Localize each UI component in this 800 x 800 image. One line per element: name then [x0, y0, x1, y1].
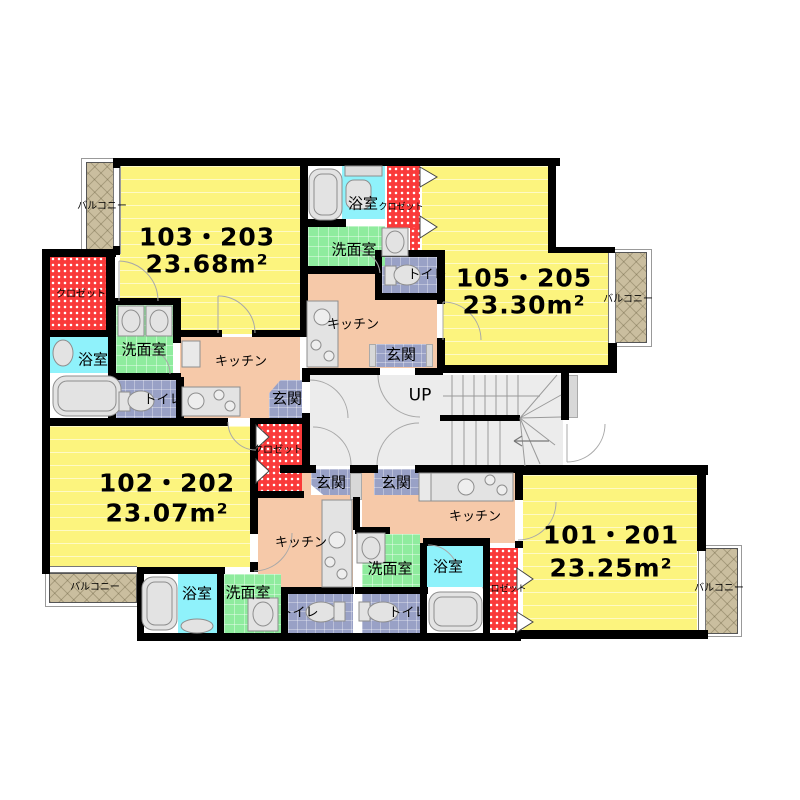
label-toilet-103: トイレ: [143, 394, 182, 407]
room-105-205: [422, 166, 548, 250]
sill-105-left: [369, 344, 376, 367]
bathtub-105: [309, 169, 342, 220]
wall: [256, 418, 302, 424]
label-bath-105: 浴室: [348, 197, 378, 212]
bathroom-102: [178, 574, 217, 633]
label-toilet-101: トイレ: [388, 607, 427, 620]
label-kitchen-103: キッチン: [215, 356, 267, 369]
wall: [302, 413, 310, 473]
wall: [608, 343, 617, 371]
wall: [42, 249, 116, 257]
wall: [515, 630, 708, 639]
wall: [423, 538, 490, 546]
wall: [308, 368, 380, 375]
wall: [108, 373, 181, 380]
wall: [515, 465, 708, 475]
unit-label-103: 103・203: [139, 225, 275, 250]
unit-label-101: 101・201: [543, 523, 679, 548]
wall: [697, 467, 706, 551]
wall: [137, 571, 144, 635]
wall: [300, 166, 308, 337]
sill-105-right: [426, 344, 433, 367]
wall: [42, 418, 228, 426]
label-entrance-105: 玄関: [386, 348, 416, 363]
wall: [355, 587, 428, 594]
wall: [108, 298, 181, 305]
unit-area-103: 23.68m²: [145, 252, 268, 277]
label-toilet-102: トイレ: [279, 607, 318, 620]
wall: [217, 571, 224, 635]
label-entrance-102: 玄関: [316, 476, 346, 491]
label-closet-101: クロゼット: [481, 586, 526, 595]
unit-label-102: 102・202: [99, 471, 235, 496]
label-kitchen-105: キッチン: [327, 319, 379, 332]
unit-area-105: 23.30m²: [462, 293, 585, 318]
label-kitchen-101: キッチン: [449, 511, 501, 524]
wall: [250, 562, 258, 572]
label-bath-103: 浴室: [78, 353, 108, 368]
wall: [548, 158, 556, 253]
unit-label-105: 105・205: [456, 266, 592, 291]
wall: [300, 219, 346, 227]
label-stairs-up: UP: [409, 388, 432, 405]
wall: [548, 247, 615, 253]
closet-102: [253, 422, 302, 491]
wall: [350, 465, 378, 473]
label-washroom-103: 洗面室: [121, 343, 166, 358]
label-washroom-105: 洗面室: [331, 243, 376, 258]
floor-plan: 103・203 23.68m² 105・205 23.30m² 102・202 …: [0, 0, 800, 800]
label-washroom-102: 洗面室: [225, 586, 270, 601]
label-kitchen-102: キッチン: [275, 537, 327, 550]
wall: [561, 373, 569, 420]
wall: [281, 587, 354, 594]
wall: [308, 266, 380, 274]
bathtub-101: [429, 592, 482, 631]
washroom-103: [116, 305, 173, 373]
wall: [280, 465, 316, 473]
wall: [252, 330, 308, 337]
wall: [137, 567, 225, 574]
wall: [420, 543, 427, 635]
wall: [440, 365, 617, 373]
bathtub-102: [142, 577, 177, 630]
label-closet-105: クロゼット: [378, 204, 423, 213]
wall: [375, 293, 445, 300]
wall: [137, 633, 521, 641]
wall: [515, 541, 523, 548]
label-toilet-105: トイレ: [407, 269, 446, 282]
wall: [250, 418, 258, 534]
label-balcony-103: バルコニー: [77, 202, 127, 212]
closet-105: [387, 166, 420, 228]
label-entrance-103: 玄関: [272, 392, 302, 407]
shoe-cabinet-101: [419, 473, 432, 500]
wall: [42, 249, 50, 574]
label-balcony-105: バルコニー: [603, 295, 653, 305]
window-102-balcony: [50, 566, 137, 573]
label-bath-102: 浴室: [182, 587, 212, 602]
label-entrance-101: 玄関: [381, 476, 411, 491]
label-closet-102: クロゼット: [253, 446, 303, 456]
stair-hall: [310, 375, 563, 466]
label-balcony-102: バルコニー: [70, 583, 120, 593]
label-bath-101: 浴室: [433, 560, 463, 575]
stair-divider-wall: [440, 415, 520, 421]
wall: [375, 255, 382, 295]
wall: [108, 305, 116, 423]
wall: [415, 465, 517, 473]
wall: [353, 497, 360, 530]
wall: [355, 527, 390, 534]
wall: [113, 158, 560, 166]
label-balcony-101: バルコニー: [694, 584, 744, 594]
wall: [375, 250, 445, 257]
wall: [515, 474, 523, 500]
wall: [42, 330, 110, 337]
wall: [255, 491, 304, 498]
label-closet-103: クロゼット: [56, 290, 106, 300]
wall: [177, 330, 222, 337]
unit-area-101: 23.25m²: [549, 556, 672, 581]
unit-area-102: 23.07m²: [105, 501, 228, 526]
shoe-cabinet-102: [350, 473, 362, 500]
label-washroom-101: 洗面室: [367, 562, 412, 577]
